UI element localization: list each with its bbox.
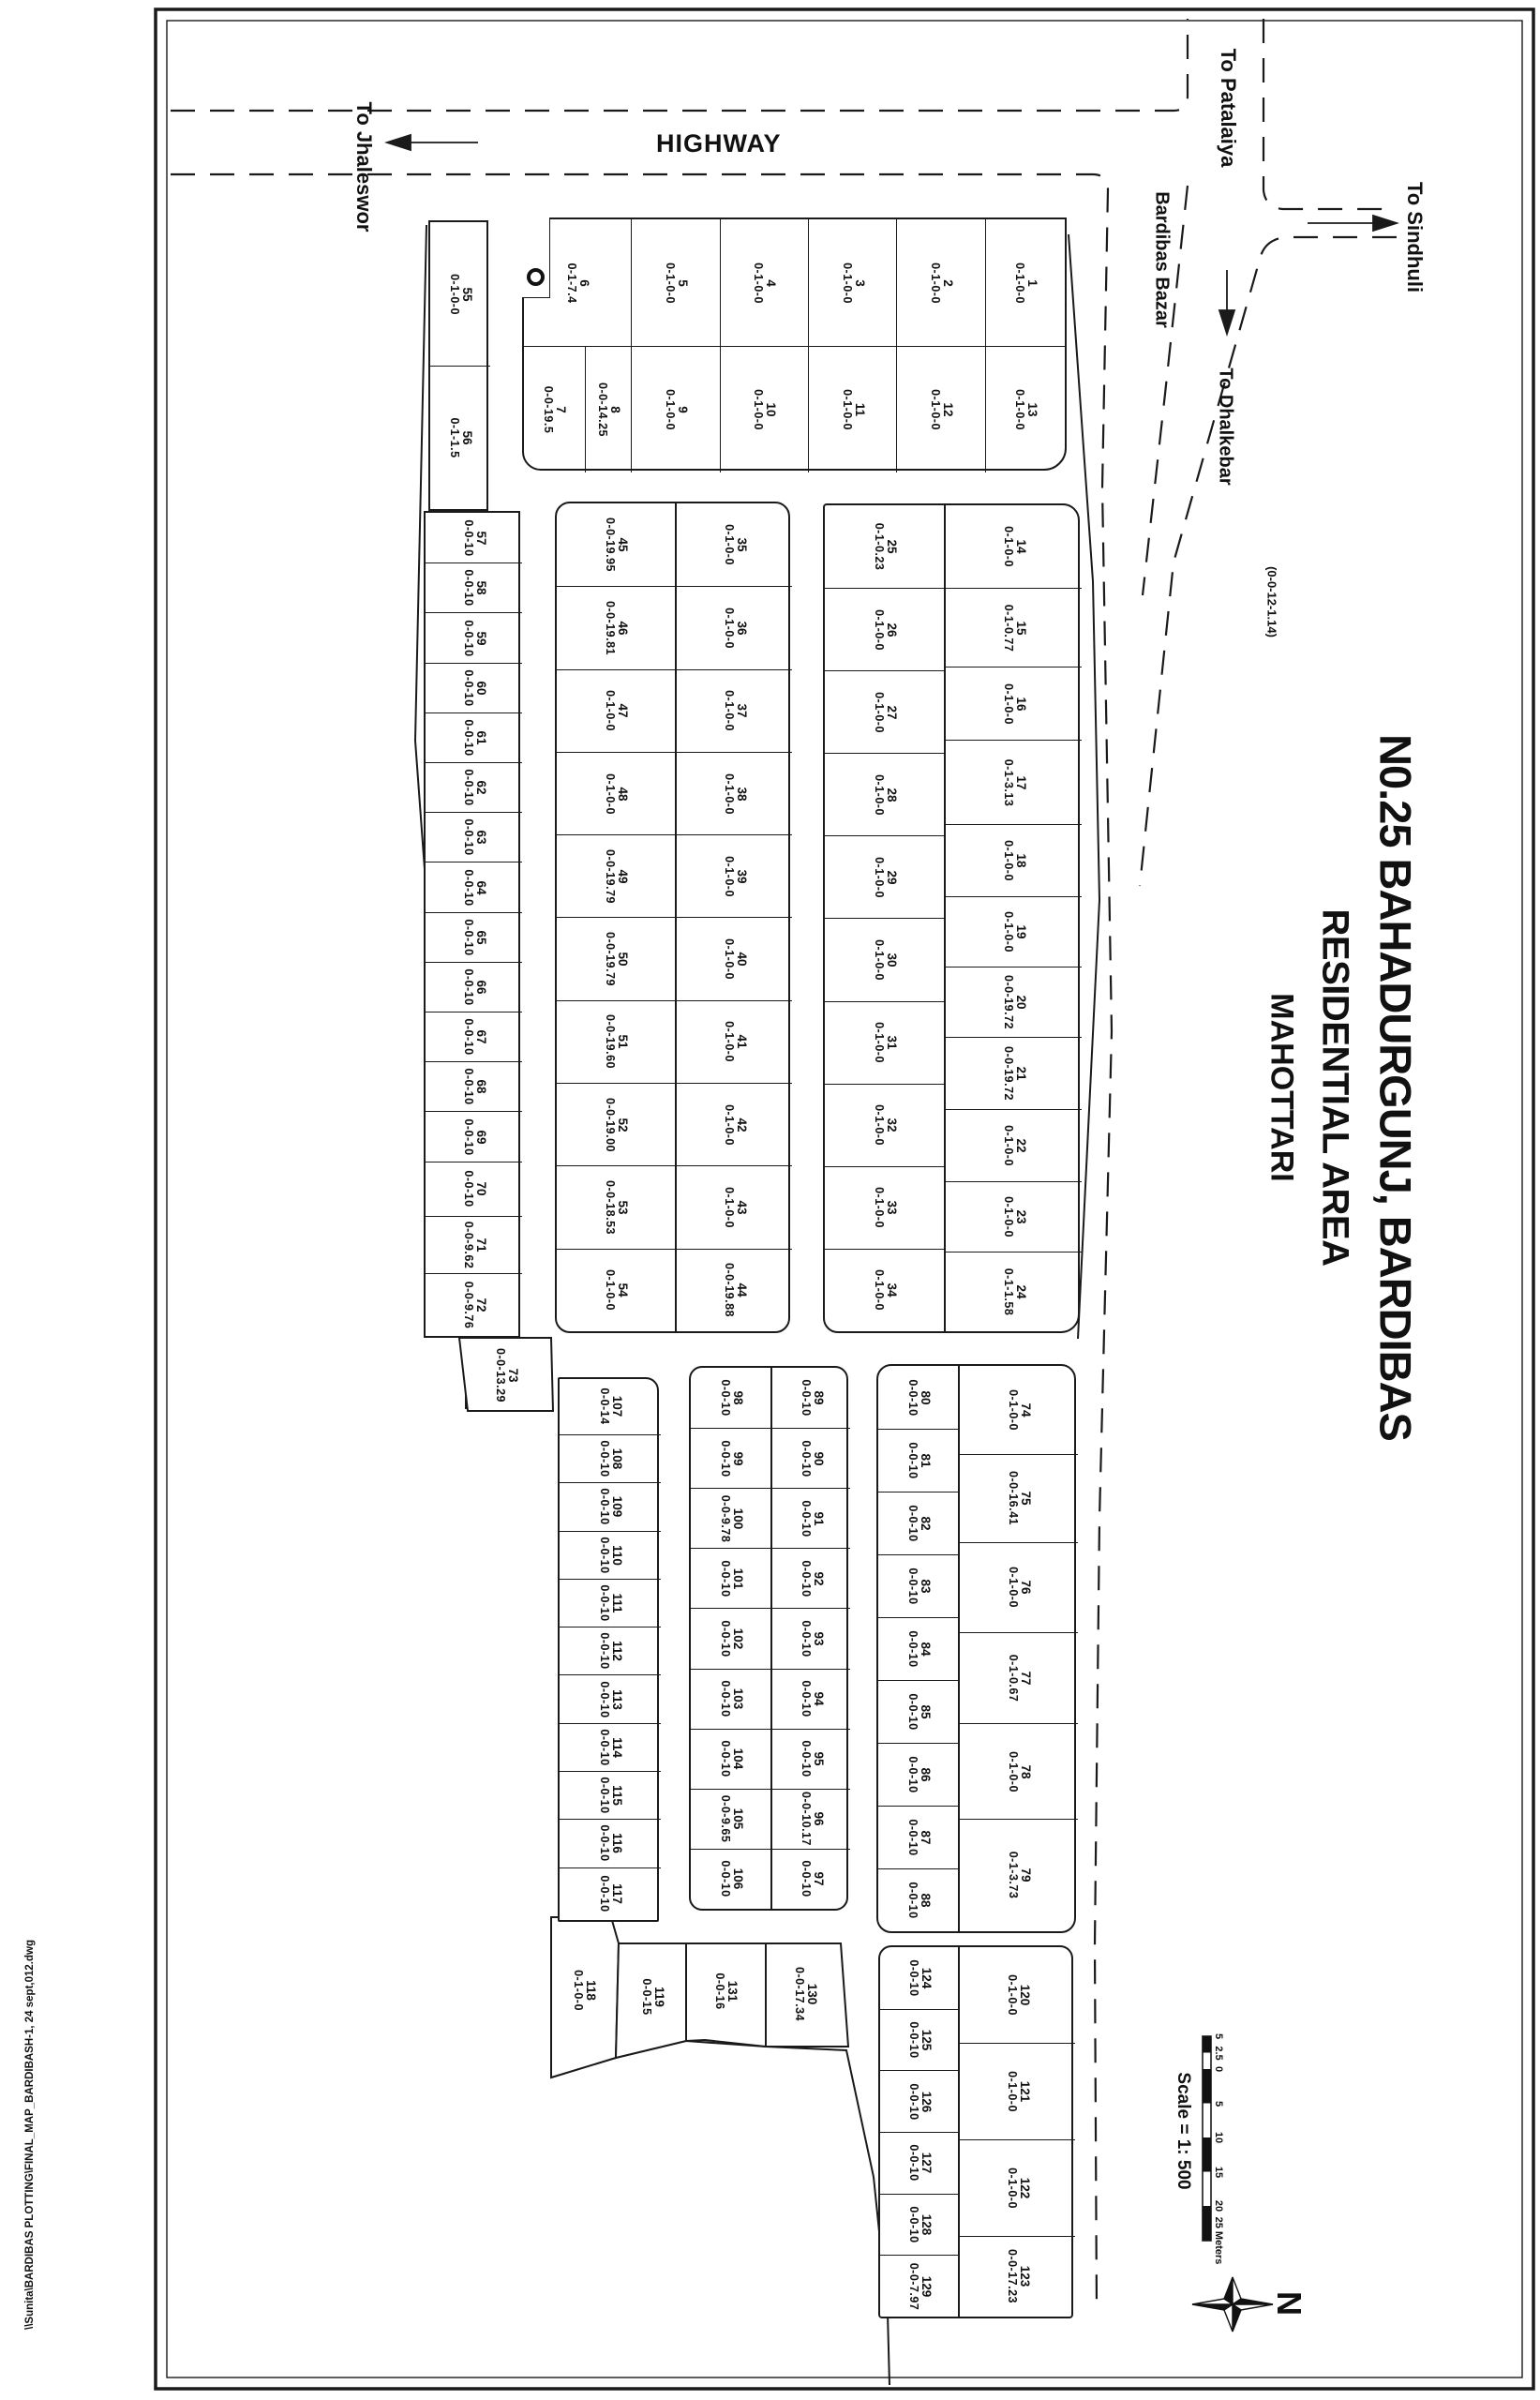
plot-cell-74: 740-1-0-0 <box>960 1366 1078 1454</box>
plot-label: 640-0-10 <box>461 869 487 906</box>
plot-label: 1240-0-10 <box>906 1959 933 1996</box>
plot-cell-116: 1160-0-10 <box>560 1819 661 1867</box>
plot-label: 760-1-0-0 <box>1006 1567 1032 1608</box>
plot-label: 310-1-0-0 <box>872 1022 898 1063</box>
plot-label: 120-1-0-0 <box>928 389 954 430</box>
plot-cell-66: 660-0-10 <box>426 962 522 1012</box>
plot-label: 380-1-0-0 <box>722 773 748 815</box>
scale-tick: 2.5 <box>1213 2046 1224 2060</box>
plot-column: 800-0-10810-0-10820-0-10830-0-10840-0-10… <box>878 1366 958 1931</box>
plot-label: 1220-1-0-0 <box>1005 2167 1031 2209</box>
plot-cell-107: 1070-0-14 <box>560 1379 661 1434</box>
plot-cell-50: 500-0-19.79 <box>557 917 675 999</box>
plot-cell-56: 560-1-1.5 <box>430 366 490 509</box>
plot-cell-41: 410-1-0-0 <box>677 1000 792 1083</box>
plot-cell-65: 650-0-10 <box>426 912 522 962</box>
plot-cell-127: 1270-0-10 <box>880 2132 958 2194</box>
plot-cell-120: 1200-1-0-0 <box>960 1947 1075 2043</box>
plot-label: 1260-0-10 <box>906 2083 933 2120</box>
scale-tick: 5 <box>1213 2033 1224 2039</box>
plot-label: 700-0-10 <box>461 1171 487 1207</box>
plot-cell-14: 140-1-0-0 <box>946 505 1082 588</box>
plot-label: 910-0-10 <box>799 1500 825 1537</box>
plot-cell-39: 390-1-0-0 <box>677 834 792 917</box>
plot-cell-110: 1100-0-10 <box>560 1531 661 1579</box>
plot-label: 770-1-0.67 <box>1006 1655 1032 1702</box>
plot-label: 10-1-0-0 <box>1012 262 1039 304</box>
plot-label: 420-1-0-0 <box>722 1104 748 1146</box>
plot-label: 1060-0-10 <box>718 1861 744 1897</box>
plot-label: 1150-0-10 <box>597 1777 623 1814</box>
plot-label: 980-0-10 <box>718 1379 744 1416</box>
plot-cell-108: 1080-0-10 <box>560 1434 661 1482</box>
plot-cell-45: 450-0-19.95 <box>557 503 675 586</box>
plot-column: 1070-0-141080-0-101090-0-101100-0-101110… <box>560 1379 661 1920</box>
plot-cell-22: 220-1-0-0 <box>946 1109 1082 1181</box>
plot-label: 210-0-19.72 <box>1001 1046 1027 1101</box>
plot-cell-4: 40-1-0-0 <box>720 219 808 346</box>
plot-cell-25: 250-1-0.23 <box>825 505 944 588</box>
plot-label: 1300-0-17.34 <box>792 1967 818 2021</box>
plot-label: 960-0-10.17 <box>799 1792 825 1846</box>
plot-label: 290-1-0-0 <box>872 857 898 898</box>
plot-label: 780-1-0-0 <box>1006 1751 1032 1792</box>
block-74-88: 800-0-10810-0-10820-0-10830-0-10840-0-10… <box>876 1364 1076 1933</box>
plot-cell-26: 260-1-0-0 <box>825 588 944 670</box>
block-120-129: 1240-0-101250-0-101260-0-101270-0-101280… <box>878 1945 1073 2318</box>
plot-label: 1070-0-14 <box>597 1388 623 1425</box>
plot-label: 820-0-10 <box>905 1505 932 1541</box>
plot-label: 1170-0-10 <box>597 1876 623 1912</box>
plot-label: 470-1-0-0 <box>603 690 629 731</box>
plot-label: 750-0-16.41 <box>1006 1471 1032 1525</box>
plot-column: 250-1-0.23260-1-0-0270-1-0-0280-1-0-0290… <box>825 505 944 1331</box>
plot-label: 600-0-10 <box>461 669 487 706</box>
plot-cell-5: 50-1-0-0 <box>631 219 719 346</box>
plot-label: 1100-0-10 <box>597 1537 623 1573</box>
plot-cell-103: 1030-0-10 <box>691 1669 770 1729</box>
plot-label: 400-1-0-0 <box>722 938 748 980</box>
sindhuli-arrow <box>1308 216 1397 231</box>
block-14-34: 250-1-0.23260-1-0-0270-1-0-0280-1-0-0290… <box>823 503 1080 1333</box>
plot-label: 220-1-0-0 <box>1001 1125 1027 1166</box>
plot-cell-61: 610-0-10 <box>426 712 522 762</box>
plot-label: 320-1-0-0 <box>872 1104 898 1146</box>
plot-cell-31: 310-1-0-0 <box>825 1001 944 1084</box>
plot-cell-62: 620-0-10 <box>426 762 522 812</box>
plot-cell-129: 1290-0-7.97 <box>880 2255 958 2317</box>
plot-cell-81: 810-0-10 <box>878 1429 958 1492</box>
plot-label: 80-0-14.25 <box>595 382 621 437</box>
plot-label: 840-0-10 <box>905 1630 932 1667</box>
plot-label: 950-0-10 <box>799 1741 825 1777</box>
plot-label: 1160-0-10 <box>597 1825 623 1862</box>
plot-label: 660-0-10 <box>461 968 487 1005</box>
plot-label: 230-1-0-0 <box>1001 1196 1027 1237</box>
plot-label: 160-1-0-0 <box>1001 683 1027 725</box>
plot-cell-69: 690-0-10 <box>426 1111 522 1161</box>
plot-cell-72: 720-0-9.76 <box>426 1273 522 1336</box>
scale-tick: 0 <box>1213 2066 1224 2072</box>
plot-label: 530-0-18.53 <box>603 1180 629 1235</box>
plot-label: 20-1-0-0 <box>928 262 954 304</box>
plot-label: 1200-1-0-0 <box>1005 1974 1031 2016</box>
plot-cell-13: 130-1-0-0 <box>985 347 1065 472</box>
plot-cell-8: 80-0-14.25 <box>585 347 632 472</box>
plot-cell-125: 1250-0-10 <box>880 2009 958 2071</box>
plot-label: 370-1-0-0 <box>722 690 748 731</box>
plot-cell-122: 1220-1-0-0 <box>960 2139 1075 2235</box>
plot-cell-18: 180-1-0-0 <box>946 824 1082 896</box>
plot-label: 810-0-10 <box>905 1442 932 1478</box>
plot-label: 1230-0-17.23 <box>1005 2249 1031 2303</box>
plot-cell-9: 90-1-0-0 <box>631 347 719 472</box>
plot-cell-40: 400-1-0-0 <box>677 917 792 999</box>
plot-cell-71: 710-0-9.62 <box>426 1216 522 1273</box>
plot-cell-55: 550-1-0-0 <box>430 222 490 366</box>
plot-label: 930-0-10 <box>799 1620 825 1657</box>
plot-cell-112: 1120-0-10 <box>560 1627 661 1674</box>
plot-cell-1: 10-1-0-0 <box>985 219 1065 346</box>
map-title-line1: N0.25 BAHADURGUNJ, BARDIBAS <box>1370 734 1422 1441</box>
plot-label: 150-1-0.77 <box>1001 605 1027 652</box>
plot-cell-48: 480-1-0-0 <box>557 752 675 834</box>
plot-column: 550-1-0-0560-1-1.5 <box>430 222 490 509</box>
plot-label: 1020-0-10 <box>718 1620 744 1657</box>
plot-cell-59: 590-0-10 <box>426 612 522 662</box>
plot-cell-85: 850-0-10 <box>878 1680 958 1743</box>
block-top: 60-1-7.450-1-0-040-1-0-030-1-0-020-1-0-0… <box>522 217 1067 471</box>
plot-label: 1290-0-7.97 <box>906 2262 933 2310</box>
plot-label: 330-1-0-0 <box>872 1187 898 1228</box>
plot-cell-63: 630-0-10 <box>426 812 522 862</box>
plot6-notch <box>522 217 550 298</box>
plot-label: 390-1-0-0 <box>722 856 748 897</box>
plot-cell-86: 860-0-10 <box>878 1743 958 1806</box>
block-55-56: 550-1-0-0560-1-1.5 <box>428 220 488 511</box>
plot-label: 830-0-10 <box>905 1567 932 1604</box>
scale-tick: 25 Meters <box>1213 2216 1224 2264</box>
plot-label: 670-0-10 <box>461 1019 487 1056</box>
plot-label: 280-1-0-0 <box>872 774 898 816</box>
plot-label: 1080-0-10 <box>597 1441 623 1477</box>
plot-label: 1040-0-10 <box>718 1741 744 1777</box>
plot-cell-102: 1020-0-10 <box>691 1608 770 1668</box>
map-title-line3: MAHOTTARI <box>1263 993 1300 1181</box>
plot-cell-78: 780-1-0-0 <box>960 1723 1078 1818</box>
plot-label: 40-1-0-0 <box>751 262 777 304</box>
plot-cell-99: 990-0-10 <box>691 1428 770 1488</box>
plot-cell-7: 70-0-19.5 <box>524 347 585 472</box>
plot-label: 1180-1-0-0 <box>571 1970 597 2011</box>
plot-label: 1010-0-10 <box>718 1560 744 1597</box>
block-57-72: 570-0-10580-0-10590-0-10600-0-10610-0-10… <box>424 511 520 1338</box>
plot-cell-51: 510-0-19.60 <box>557 1000 675 1083</box>
plot-cell-20: 200-0-19.72 <box>946 967 1082 1037</box>
plot-column: 350-1-0-0360-1-0-0370-1-0-0380-1-0-0390-… <box>675 503 792 1331</box>
plot-label: 1030-0-10 <box>718 1681 744 1717</box>
plot-cell-10: 100-1-0-0 <box>720 347 808 472</box>
plot-label: 800-0-10 <box>905 1379 932 1416</box>
plot-cell-30: 300-1-0-0 <box>825 918 944 1000</box>
to-jhaleswor-label: To Jhaleswor <box>351 102 376 232</box>
area-annotation: (0-0-12-1.14) <box>1265 566 1279 637</box>
plot-label: 110-1-0-0 <box>840 389 866 430</box>
to-patalaiya-label: To Patalaiya <box>1216 49 1240 168</box>
plot-cell-101: 1010-0-10 <box>691 1548 770 1608</box>
plot-label: 1090-0-10 <box>597 1489 623 1525</box>
plot-label: 240-1-1.58 <box>1001 1268 1027 1316</box>
bardibas-bazar-label: Bardibas Bazar <box>1151 191 1173 328</box>
plot-label: 200-0-19.72 <box>1001 975 1027 1029</box>
plot-label: 610-0-10 <box>461 719 487 756</box>
plot-cell-60: 600-0-10 <box>426 663 522 712</box>
plot-cell-95: 950-0-10 <box>772 1729 850 1789</box>
plot-cell-28: 280-1-0-0 <box>825 753 944 835</box>
plot-cell-33: 330-1-0-0 <box>825 1166 944 1249</box>
plot-label: 850-0-10 <box>905 1693 932 1730</box>
plot-cell-24: 240-1-1.58 <box>946 1252 1082 1331</box>
plot-label: 890-0-10 <box>799 1379 825 1416</box>
plot-label: 920-0-10 <box>799 1560 825 1597</box>
to-sindhuli-label: To Sindhuli <box>1402 182 1427 292</box>
plot-cell-67: 670-0-10 <box>426 1012 522 1061</box>
plot-cell-57: 570-0-10 <box>426 513 522 562</box>
plot-label: 270-1-0-0 <box>872 692 898 733</box>
plot-label: 680-0-10 <box>461 1069 487 1105</box>
highway-label: HIGHWAY <box>656 129 782 158</box>
sindhuli-road-line <box>1140 237 1397 886</box>
patalaiya-road-line <box>1263 19 1397 209</box>
plot-label: 1280-0-10 <box>906 2206 933 2242</box>
plot-cell-12: 120-1-0-0 <box>896 347 984 472</box>
plot-cell-34: 340-1-0-0 <box>825 1249 944 1331</box>
plot-cell-121: 1210-1-0-0 <box>960 2043 1075 2139</box>
plot-label: 730-0-13.29 <box>493 1348 519 1402</box>
scale-tick: 10 <box>1213 2132 1224 2143</box>
plot-column: 450-0-19.95460-0-19.81470-1-0-0480-1-0-0… <box>557 503 675 1331</box>
plot-cell-80: 800-0-10 <box>878 1366 958 1429</box>
plot-label: 630-0-10 <box>461 819 487 856</box>
plot-label: 690-0-10 <box>461 1118 487 1155</box>
plot-cell-90: 900-0-10 <box>772 1428 850 1488</box>
plot-label: 430-1-0-0 <box>722 1187 748 1228</box>
plot-label: 880-0-10 <box>905 1882 932 1918</box>
plot-cell-17: 170-1-3.13 <box>946 740 1082 824</box>
plot-cell-77: 770-1-0.67 <box>960 1632 1078 1724</box>
plot-cell-105: 1050-0-9.65 <box>691 1789 770 1849</box>
north-label: N <box>1269 2291 1308 2316</box>
plot-column: 890-0-10900-0-10910-0-10920-0-10930-0-10… <box>770 1368 850 1909</box>
plot-cell-109: 1090-0-10 <box>560 1482 661 1530</box>
plot-cell-76: 760-1-0-0 <box>960 1542 1078 1632</box>
plot-cell-98: 980-0-10 <box>691 1368 770 1428</box>
plot-label: 350-1-0-0 <box>722 524 748 565</box>
plot-cell-27: 270-1-0-0 <box>825 670 944 753</box>
plot-label: 60-1-7.4 <box>564 262 591 303</box>
plot-cell-29: 290-1-0-0 <box>825 835 944 918</box>
plot-label: 90-1-0-0 <box>663 389 689 430</box>
plot-label: 450-0-19.95 <box>603 517 629 572</box>
plot-cell-35: 350-1-0-0 <box>677 503 792 586</box>
map-sheet: 60-1-7.450-1-0-040-1-0-030-1-0-020-1-0-0… <box>0 0 1540 2400</box>
highway-upper-line <box>171 19 1188 111</box>
plot-label: 1210-1-0-0 <box>1005 2071 1031 2112</box>
plot-cell-94: 940-0-10 <box>772 1669 850 1729</box>
scale-bar <box>1203 2036 1211 2241</box>
plot-cell-23: 230-1-0-0 <box>946 1181 1082 1252</box>
plot-label: 1190-0-15 <box>639 1978 665 2015</box>
plot-cell-79: 790-1-3.73 <box>960 1819 1078 1931</box>
plot-cell-42: 420-1-0-0 <box>677 1083 792 1165</box>
plot-label: 900-0-10 <box>799 1440 825 1477</box>
plot-cell-114: 1140-0-10 <box>560 1723 661 1771</box>
plot-label: 1000-0-9.78 <box>718 1494 744 1542</box>
plot-label: 260-1-0-0 <box>872 609 898 651</box>
plot-cell-49: 490-0-19.79 <box>557 834 675 917</box>
plot-cell-124: 1240-0-10 <box>880 1947 958 2009</box>
plot-cell-113: 1130-0-10 <box>560 1674 661 1722</box>
plot-label: 180-1-0-0 <box>1001 840 1027 881</box>
plot-cell-70: 700-0-10 <box>426 1162 522 1217</box>
plot-label: 410-1-0-0 <box>722 1022 748 1063</box>
plot-label: 490-0-19.79 <box>603 849 629 904</box>
plot-label: 340-1-0-0 <box>872 1269 898 1311</box>
plot-row: 60-1-7.450-1-0-040-1-0-030-1-0-020-1-0-0… <box>524 219 1065 346</box>
plot-label: 1110-0-10 <box>597 1584 623 1621</box>
plot-column: 570-0-10580-0-10590-0-10600-0-10610-0-10… <box>426 513 522 1336</box>
plot-label: 140-1-0-0 <box>1001 526 1027 567</box>
plot-cell-88: 880-0-10 <box>878 1868 958 1931</box>
plot-label: 520-0-19.00 <box>603 1098 629 1152</box>
plot-label: 1310-0-16 <box>712 1972 739 2009</box>
plot-cell-64: 640-0-10 <box>426 862 522 911</box>
plot-cell-52: 520-0-19.00 <box>557 1083 675 1165</box>
plot-cell-96: 960-0-10.17 <box>772 1789 850 1849</box>
plot-label: 560-1-1.5 <box>447 417 473 457</box>
plot-column: 140-1-0-0150-1-0.77160-1-0-0170-1-3.1318… <box>944 505 1082 1331</box>
scale-tick: 5 <box>1213 2100 1224 2106</box>
plot-label: 480-1-0-0 <box>603 773 629 815</box>
plot-label: 50-1-0-0 <box>663 262 689 304</box>
plot-label: 970-0-10 <box>799 1861 825 1897</box>
plot-label: 1130-0-10 <box>597 1681 623 1717</box>
plot-cell-111: 1110-0-10 <box>560 1579 661 1627</box>
plot-cell-82: 820-0-10 <box>878 1492 958 1554</box>
plot-label: 1120-0-10 <box>597 1633 623 1670</box>
plot-cell-84: 840-0-10 <box>878 1617 958 1680</box>
plot-cell-21: 210-0-19.72 <box>946 1037 1082 1109</box>
plot-cell-93: 930-0-10 <box>772 1608 850 1668</box>
well-circle-icon <box>527 268 545 286</box>
jhaleswor-arrow <box>387 135 478 150</box>
plot-cell-44: 440-0-19.88 <box>677 1249 792 1331</box>
plot-cell-83: 830-0-10 <box>878 1554 958 1617</box>
plot-label: 740-1-0-0 <box>1006 1389 1032 1431</box>
plot-column: 1200-1-0-01210-1-0-01220-1-0-01230-0-17.… <box>958 1947 1075 2317</box>
plot-label: 440-0-19.88 <box>722 1263 748 1317</box>
plot-column: 740-1-0-0750-0-16.41760-1-0-0770-1-0.677… <box>958 1366 1078 1931</box>
plot-cell-46: 460-0-19.81 <box>557 586 675 668</box>
plot-label: 190-1-0-0 <box>1001 911 1027 952</box>
file-path-label: \\Sunita\BARDIBAS PLOTTING\FINAL_MAP_BAR… <box>24 1940 36 2330</box>
plot-label: 1250-0-10 <box>906 2021 933 2058</box>
plot-label: 860-0-10 <box>905 1756 932 1792</box>
plot-column: 980-0-10990-0-101000-0-9.781010-0-101020… <box>691 1368 770 1909</box>
plot-label: 580-0-10 <box>461 570 487 607</box>
plot-cell-100: 1000-0-9.78 <box>691 1488 770 1548</box>
plot-label: 1270-0-10 <box>906 2145 933 2182</box>
dhalkebar-arrow <box>1219 270 1234 334</box>
plot-label: 70-0-19.5 <box>541 386 567 434</box>
plot-cell-97: 970-0-10 <box>772 1849 850 1909</box>
plot-label: 500-0-19.79 <box>603 932 629 986</box>
plot-cell-38: 380-1-0-0 <box>677 752 792 834</box>
plot-cell-106: 1060-0-10 <box>691 1849 770 1909</box>
plot-cell-15: 150-1-0.77 <box>946 588 1082 667</box>
plot-label: 650-0-10 <box>461 919 487 955</box>
plot-label: 940-0-10 <box>799 1681 825 1717</box>
plot-cell-2: 20-1-0-0 <box>896 219 984 346</box>
north-star-icon <box>1192 2277 1273 2332</box>
plot-cell-19: 190-1-0-0 <box>946 896 1082 967</box>
map-title-line2: RESIDENTIAL AREA <box>1314 909 1356 1267</box>
plot-label: 590-0-10 <box>461 620 487 656</box>
plot-cell-43: 430-1-0-0 <box>677 1165 792 1248</box>
plot-cell-54: 540-1-0-0 <box>557 1249 675 1331</box>
plot-cell-115: 1150-0-10 <box>560 1771 661 1819</box>
plot-cell-36: 360-1-0-0 <box>677 586 792 668</box>
plot-label: 460-0-19.81 <box>603 601 629 655</box>
plot-cell-75: 750-0-16.41 <box>960 1454 1078 1542</box>
plot-label: 300-1-0-0 <box>872 939 898 981</box>
plot-label: 620-0-10 <box>461 770 487 806</box>
plot-column: 1240-0-101250-0-101260-0-101270-0-101280… <box>880 1947 958 2317</box>
plot-cell-37: 370-1-0-0 <box>677 669 792 752</box>
plot-row: 70-0-19.580-0-14.2590-1-0-0100-1-0-0110-… <box>524 346 1065 472</box>
plot-label: 130-1-0-0 <box>1012 389 1039 430</box>
scale-tick: 15 <box>1213 2166 1224 2177</box>
plot-cell-16: 160-1-0-0 <box>946 667 1082 740</box>
plot-label: 870-0-10 <box>905 1819 932 1855</box>
plot-label: 710-0-9.62 <box>461 1222 487 1269</box>
plot-label: 990-0-10 <box>718 1440 744 1477</box>
plot-label: 1140-0-10 <box>597 1729 623 1765</box>
plot-cell-53: 530-0-18.53 <box>557 1165 675 1248</box>
plot-cell-58: 580-0-10 <box>426 562 522 612</box>
scale-text: Scale = 1: 500 <box>1173 2072 1193 2189</box>
block-107-117: 1070-0-141080-0-101090-0-101100-0-101110… <box>558 1377 659 1922</box>
plot-cell-32: 320-1-0-0 <box>825 1084 944 1166</box>
plot-cell-3: 30-1-0-0 <box>808 219 896 346</box>
plot-label: 510-0-19.60 <box>603 1014 629 1069</box>
to-dhalkebar-label: To Dhalkebar <box>1215 367 1236 485</box>
plot-cell-87: 870-0-10 <box>878 1806 958 1868</box>
block-89-106: 980-0-10990-0-101000-0-9.781010-0-101020… <box>689 1366 848 1911</box>
plot-cell-117: 1170-0-10 <box>560 1867 661 1920</box>
plot-cell-47: 470-1-0-0 <box>557 669 675 752</box>
plot-label: 570-0-10 <box>461 519 487 556</box>
plot-label: 1050-0-9.65 <box>718 1795 744 1843</box>
plot-label: 720-0-9.76 <box>461 1282 487 1329</box>
block-35-54: 450-0-19.95460-0-19.81470-1-0-0480-1-0-0… <box>555 502 790 1333</box>
plot-label: 360-1-0-0 <box>722 607 748 649</box>
plot-cell-92: 920-0-10 <box>772 1548 850 1608</box>
plot-label: 250-1-0.23 <box>872 523 898 571</box>
plot-cell-123: 1230-0-17.23 <box>960 2236 1075 2317</box>
plot-label: 30-1-0-0 <box>840 262 866 304</box>
plot-cell-68: 680-0-10 <box>426 1061 522 1111</box>
